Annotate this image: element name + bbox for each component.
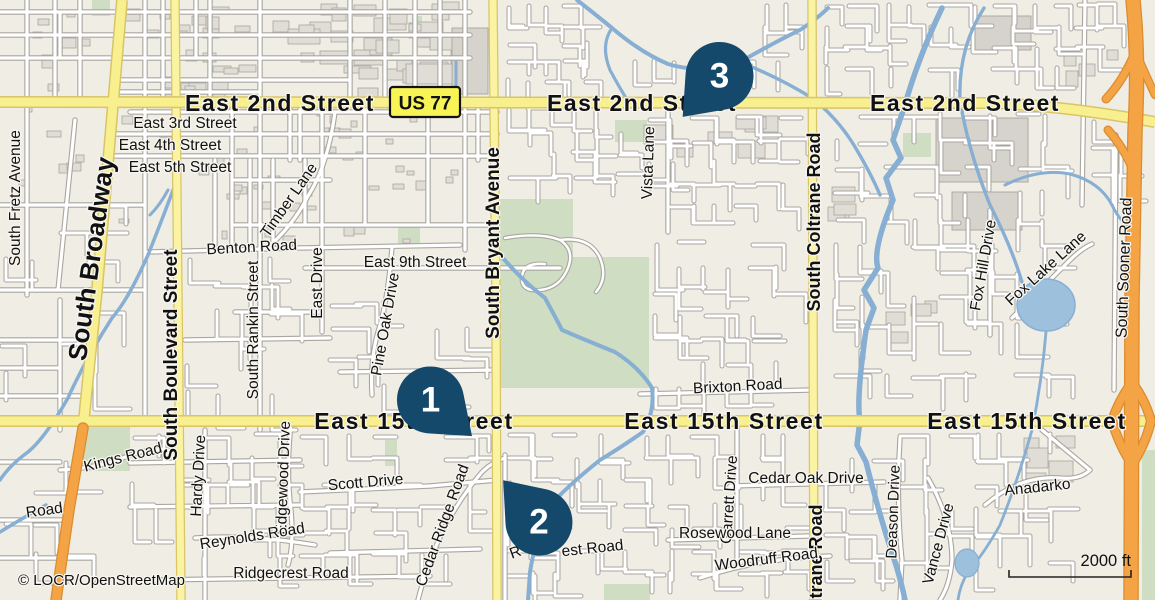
svg-text:East 3rd Street: East 3rd Street bbox=[133, 115, 237, 132]
svg-text:2: 2 bbox=[529, 503, 548, 542]
svg-text:East 2nd Street: East 2nd Street bbox=[185, 90, 375, 116]
svg-text:Cedar Oak Drive: Cedar Oak Drive bbox=[748, 470, 863, 487]
svg-text:1: 1 bbox=[421, 381, 440, 420]
svg-text:East 9th Street: East 9th Street bbox=[364, 254, 467, 271]
svg-text:East Drive: East Drive bbox=[309, 247, 326, 319]
svg-text:South Fretz Avenue: South Fretz Avenue bbox=[7, 130, 24, 266]
svg-text:East 2nd Street: East 2nd Street bbox=[870, 90, 1060, 116]
svg-text:South Bryant Avenue: South Bryant Avenue bbox=[483, 147, 504, 339]
svg-text:3: 3 bbox=[710, 57, 729, 96]
svg-text:East 4th Street: East 4th Street bbox=[119, 137, 222, 154]
svg-text:South Boulevard Street: South Boulevard Street bbox=[161, 249, 182, 461]
svg-text:East 15th Street: East 15th Street bbox=[927, 408, 1126, 434]
svg-text:East 15th Street: East 15th Street bbox=[624, 408, 823, 434]
svg-text:2000 ft: 2000 ft bbox=[1081, 552, 1132, 570]
svg-text:Vista Lane: Vista Lane bbox=[639, 126, 659, 200]
svg-text:South Rankin Street: South Rankin Street bbox=[245, 260, 262, 399]
svg-text:South Coltrane Road: South Coltrane Road bbox=[804, 133, 824, 312]
svg-text:Deason Drive: Deason Drive bbox=[883, 465, 903, 559]
svg-text:Ridgecrest Road: Ridgecrest Road bbox=[233, 565, 348, 582]
svg-text:Rosewood Lane: Rosewood Lane bbox=[679, 525, 791, 542]
svg-text:© LOCR/OpenStreetMap: © LOCR/OpenStreetMap bbox=[18, 572, 185, 589]
svg-text:US 77: US 77 bbox=[399, 94, 452, 115]
svg-text:East 5th Street: East 5th Street bbox=[129, 159, 232, 176]
